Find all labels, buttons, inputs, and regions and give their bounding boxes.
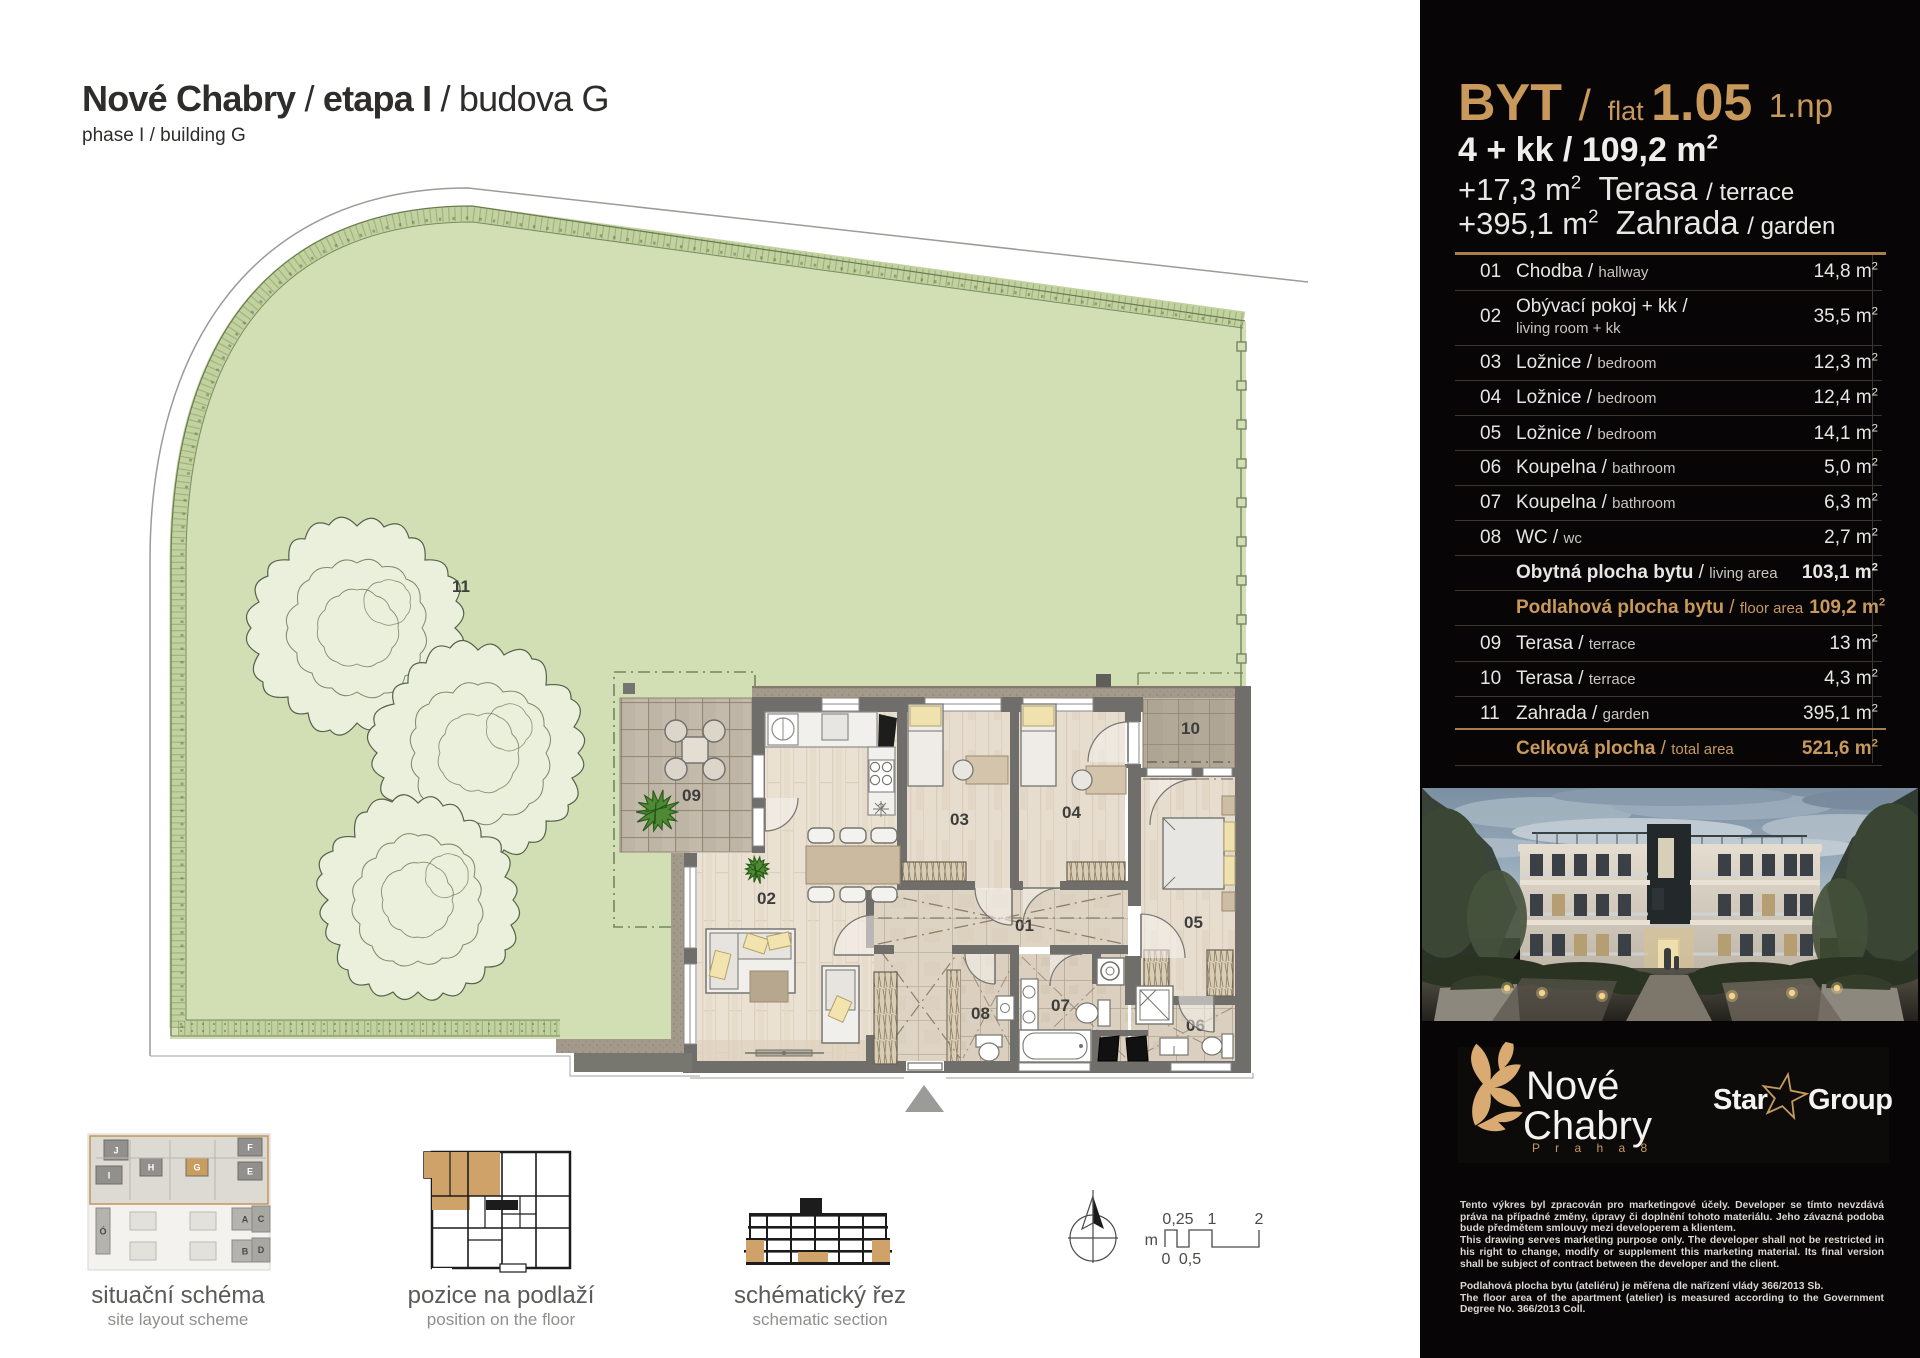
svg-text:I: I [108,1171,111,1181]
svg-text:H: H [148,1163,155,1173]
svg-text:Star: Star [1713,1084,1768,1116]
svg-text:0,5: 0,5 [1179,1251,1201,1268]
svg-text:G: G [193,1163,200,1173]
svg-text:2: 2 [1255,1211,1264,1228]
svg-text:Nové: Nové [1526,1064,1619,1108]
svg-text:08: 08 [971,1004,990,1023]
svg-text:04: 04 [1062,803,1081,822]
svg-text:C: C [258,1214,265,1224]
svg-text:position on the floor: position on the floor [427,1310,576,1329]
svg-text:schematic section: schematic section [752,1310,887,1329]
svg-text:10: 10 [1181,719,1200,738]
svg-text:pozice na podlaží: pozice na podlaží [408,1282,595,1309]
svg-text:0: 0 [1162,1251,1171,1268]
svg-text:1: 1 [1208,1211,1217,1228]
svg-text:m: m [1145,1232,1158,1249]
svg-text:schématický řez: schématický řez [734,1282,906,1309]
svg-text:A: A [242,1215,249,1225]
svg-text:B: B [242,1247,249,1257]
svg-text:0,25: 0,25 [1162,1211,1193,1228]
svg-text:J: J [113,1146,118,1156]
svg-text:07: 07 [1051,996,1070,1015]
svg-text:03: 03 [950,810,969,829]
svg-text:situační schéma: situační schéma [91,1282,265,1309]
svg-text:Ó: Ó [99,1226,106,1237]
svg-text:Group: Group [1808,1084,1893,1116]
svg-text:E: E [247,1167,253,1177]
svg-text:01: 01 [1015,916,1034,935]
svg-text:05: 05 [1184,913,1203,932]
svg-text:11: 11 [452,577,470,596]
svg-text:09: 09 [682,786,701,805]
svg-text:02: 02 [757,889,776,908]
svg-text:F: F [247,1143,253,1153]
svg-text:site layout scheme: site layout scheme [108,1310,249,1329]
svg-text:P r a h a 8: P r a h a 8 [1532,1141,1653,1155]
svg-text:D: D [258,1245,265,1255]
